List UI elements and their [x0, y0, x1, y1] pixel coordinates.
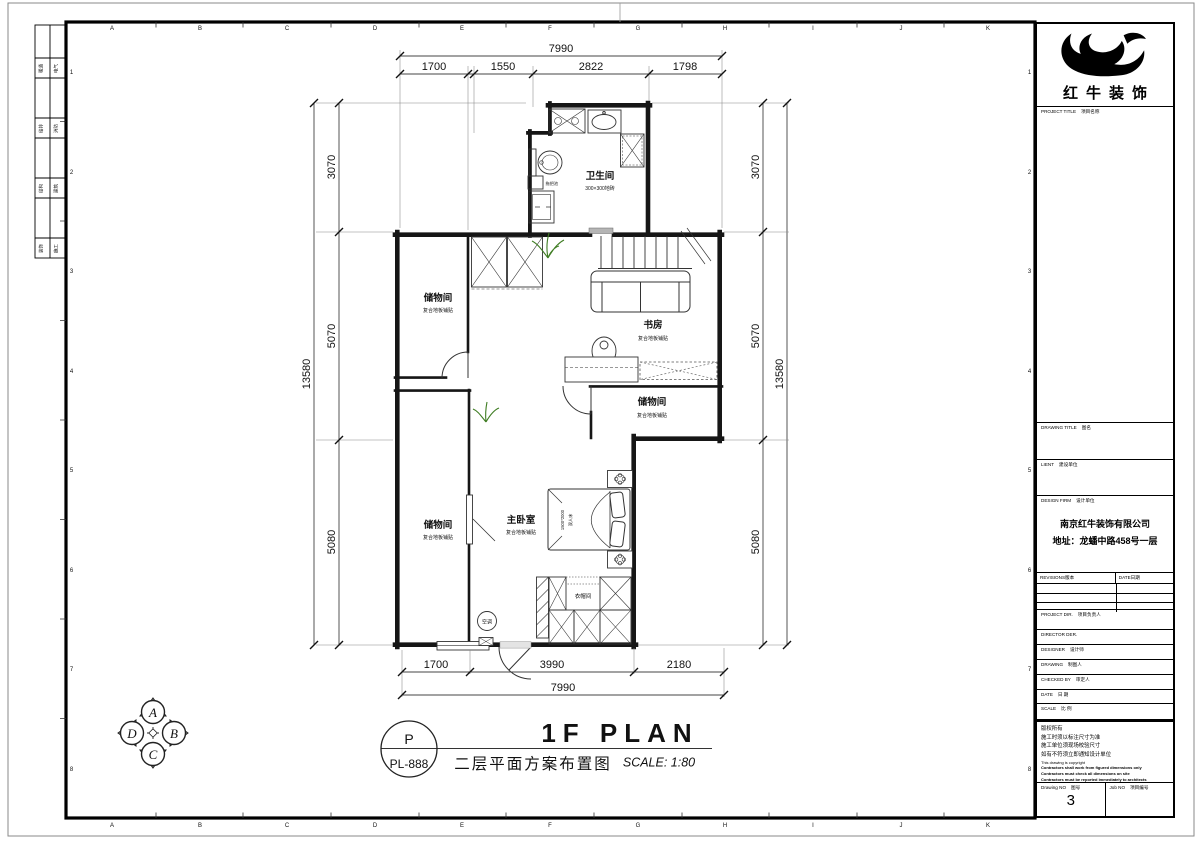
dim-label: 1700	[422, 61, 446, 73]
drawing-title-section: DRAWING TITLE图名	[1037, 423, 1173, 460]
dim-label: 5070	[750, 324, 762, 348]
revision-row	[1037, 594, 1173, 604]
grid-letter: C	[285, 823, 290, 829]
signature-strip	[35, 25, 65, 258]
revisions-label-cn: 版本	[1065, 575, 1074, 580]
floor-plan-canvas: A B C D E F G H I J K A B C D E F G H I …	[0, 0, 1200, 844]
toilet-icon	[538, 151, 562, 174]
dim-label: 1550	[491, 61, 515, 73]
design-firm-label-en: DESIGN FIRM	[1041, 498, 1071, 503]
room-label-bathroom: 卫生间	[586, 170, 615, 182]
counter-dashed-icon	[640, 362, 717, 380]
dim-label: 3070	[326, 155, 338, 179]
drawing-annotation: P PL-888 1F PLAN 二层平面方案布置图 SCALE: 1:80	[381, 718, 712, 777]
revisions-section: REVISIONS版本 DATE日期	[1037, 573, 1173, 610]
grid-letter: A	[110, 26, 114, 32]
room-label-master-bedroom: 主卧室	[507, 514, 536, 526]
ac-unit-icon	[478, 612, 497, 646]
grid-letter: F	[548, 26, 552, 32]
drawing-label-cn: 制图人	[1068, 662, 1082, 667]
drawing-row: DRAWING制图人	[1037, 660, 1173, 675]
signature-cell: 结构	[38, 184, 45, 193]
revisions-header: REVISIONS版本 DATE日期	[1037, 573, 1173, 584]
room-label-cloakroom: 衣帽间	[575, 592, 592, 600]
revisions-label-en: REVISIONS	[1040, 575, 1065, 580]
dim-label: 5070	[326, 324, 338, 348]
plant-icons	[473, 233, 564, 422]
sofa-icon	[591, 271, 690, 312]
grid-number: 5	[1028, 468, 1032, 474]
signature-labels: 暖通 电气 给排 消防 结构 建筑 装饰 施工	[38, 64, 60, 253]
signature-cell: 装饰	[38, 244, 45, 253]
grid-letters-top: A B C D E F G H I J K	[110, 26, 990, 32]
dimension-labels: 7990 1700 1550 2822 1798 1700 3990 2180 …	[301, 43, 786, 694]
design-firm-label-cn: 设计单位	[1076, 498, 1094, 503]
drawing-tag-letter: P	[404, 731, 413, 747]
closet-icons	[472, 237, 543, 289]
compass-letter-c: C	[149, 747, 158, 762]
drawing-number-section: Drawing NO图号 3 Job NO项目编号	[1037, 783, 1173, 816]
drawing-number-cell: Drawing NO图号 3	[1037, 783, 1106, 816]
director-row: DIRECTOR DER.	[1037, 630, 1173, 645]
sliding-door-panel	[467, 495, 473, 544]
job-no-label-en: Job NO	[1110, 785, 1126, 790]
date-label-cn: 日 期	[1058, 692, 1068, 697]
dim-label: 5080	[750, 530, 762, 554]
grid-letter: C	[285, 26, 290, 32]
project-dir-row: PROJECT DIR.项目负责人	[1037, 610, 1173, 630]
dim-label: 13580	[774, 359, 786, 390]
storage2-door-arc	[563, 386, 591, 414]
grid-letters-bottom: A B C D E F G H I J K	[110, 823, 990, 829]
grid-letter: J	[900, 26, 903, 32]
designer-row: DESIGNER设计师	[1037, 645, 1173, 660]
bathroom-fixtures	[528, 109, 644, 223]
revision-row	[1037, 584, 1173, 594]
wardrobe-icons	[537, 577, 632, 644]
grid-letter: E	[460, 823, 464, 829]
grid-number: 4	[1028, 369, 1032, 375]
ac-label: 空调	[482, 619, 492, 626]
project-dir-label-en: PROJECT DIR.	[1041, 612, 1073, 617]
drawing-title-label-cn: 图名	[1082, 425, 1091, 430]
grid-number: 8	[1028, 767, 1032, 773]
design-firm-section: DESIGN FIRM设计单位 南京红牛装饰有限公司 地址：龙蟠中路458号一层	[1037, 496, 1173, 573]
dim-label: 1700	[424, 659, 448, 671]
grid-letter: I	[812, 823, 814, 829]
room-label-study: 书房	[643, 319, 662, 331]
room-label-storage-3: 储物间	[424, 519, 453, 531]
grid-number: 6	[70, 568, 74, 574]
dim-label: 13580	[301, 359, 313, 390]
grid-numbers-right: 1 2 3 4 5 6 7 8	[1028, 70, 1032, 773]
grid-letter: K	[986, 26, 990, 32]
scale-label-en: SCALE	[1041, 706, 1056, 711]
grid-number: 7	[1028, 667, 1032, 673]
grid-number: 4	[70, 369, 74, 375]
dim-label: 2180	[667, 659, 691, 671]
dim-label: 1798	[673, 61, 697, 73]
drawing-sheet: A B C D E F G H I J K A B C D E F G H I …	[0, 0, 1200, 844]
dim-label: 3070	[750, 155, 762, 179]
signature-cell: 电气	[53, 64, 59, 73]
signature-cell: 给排	[38, 124, 45, 133]
grid-numbers-left: 1 2 3 4 5 6 7 8	[70, 70, 74, 773]
room-label-storage-2: 储物间	[638, 396, 667, 408]
grid-number: 7	[70, 667, 74, 673]
drawing-title-label-en: DRAWING TITLE	[1041, 425, 1077, 430]
grid-letter: K	[986, 823, 990, 829]
grid-number: 1	[70, 70, 74, 76]
compass-icon: A B C D	[118, 698, 188, 768]
dim-label: 7990	[551, 682, 575, 694]
room-label-storage-1: 储物间	[424, 292, 453, 304]
grid-letter: F	[548, 823, 552, 829]
plan-scale-label: SCALE: 1:80	[623, 756, 695, 770]
bathroom-threshold	[589, 228, 613, 234]
checked-by-label-cn: 审定人	[1076, 677, 1090, 682]
bed-type-label: 双人床	[567, 513, 574, 526]
bull-logo-icon	[1039, 26, 1171, 80]
grid-letter: H	[723, 823, 727, 829]
checked-by-row: CHECKED BY审定人	[1037, 675, 1173, 690]
grid-number: 3	[1028, 269, 1032, 275]
drawing-no-label-cn: 图号	[1071, 785, 1080, 790]
job-number-cell: Job NO项目编号	[1106, 783, 1174, 816]
note-line: 施工时须以标注尺寸为准	[1041, 734, 1169, 743]
date-row: DATE日 期	[1037, 690, 1173, 704]
compass-letter-b: B	[170, 726, 178, 741]
grid-number: 2	[1028, 170, 1032, 176]
bed-size-label: 1500*2000	[560, 509, 565, 530]
note-line: 施工单位须现场校验尺寸	[1041, 742, 1169, 751]
grid-number: 6	[1028, 568, 1032, 574]
dim-label: 5080	[326, 530, 338, 554]
date-label-en: DATE	[1041, 692, 1053, 697]
room-sublabel: 复合地板铺贴	[423, 307, 453, 314]
grid-number: 1	[1028, 70, 1032, 76]
dimension-lines	[314, 56, 787, 695]
note-line: 如有不符须立即通知设计单位	[1041, 751, 1169, 760]
desk-chair-icons	[565, 337, 638, 382]
date-col-label-en: DATE	[1119, 575, 1131, 580]
signature-cell: 暖通	[38, 64, 45, 73]
signature-cell: 建筑	[53, 184, 60, 193]
grid-letter: B	[198, 26, 202, 32]
project-title-label-en: PROJECT TITLE	[1041, 109, 1076, 114]
room-sublabel: 复合地板铺贴	[637, 412, 667, 419]
grid-number: 3	[70, 269, 74, 275]
designer-label-en: DESIGNER	[1041, 647, 1065, 652]
grid-number: 8	[70, 767, 74, 773]
dim-label: 2822	[579, 61, 603, 73]
client-section: LIENT建设单位	[1037, 460, 1173, 496]
plan-title-cn: 二层平面方案布置图	[454, 755, 612, 773]
mop-sink-label: 拖把池	[546, 180, 559, 187]
room-sublabel: 复合地板铺贴	[506, 529, 536, 536]
signature-cell: 施工	[53, 244, 60, 253]
note-line: Contractors must be reported immediately…	[1041, 777, 1169, 783]
design-firm-company: 南京红牛装饰有限公司	[1041, 517, 1169, 530]
job-no-label-cn: 项目编号	[1130, 785, 1148, 790]
storage-door-arc	[442, 352, 468, 378]
grid-letter: D	[373, 26, 378, 32]
grid-letter: G	[636, 26, 641, 32]
grid-number: 2	[70, 170, 74, 176]
project-dir-label-cn: 项目负责人	[1078, 612, 1101, 617]
grid-letter: G	[636, 823, 641, 829]
drawing-label-en: DRAWING	[1041, 662, 1063, 667]
note-line: 版权所有	[1041, 725, 1169, 734]
grid-number: 5	[70, 468, 74, 474]
room-sublabel: 复合地板铺贴	[638, 335, 668, 342]
entry-threshold	[500, 642, 531, 649]
designer-label-cn: 设计师	[1070, 647, 1084, 652]
signature-cell: 消防	[53, 124, 60, 133]
logo-text: 红牛装饰	[1037, 82, 1173, 103]
checked-by-label-en: CHECKED BY	[1041, 677, 1071, 682]
notes-section: 版权所有 施工时须以标注尺寸为准 施工单位须现场校验尺寸 如有不符须立即通知设计…	[1037, 720, 1173, 783]
scale-label-cn: 比 例	[1061, 706, 1071, 711]
drawing-no-label-en: Drawing NO	[1041, 785, 1066, 790]
grid-letter: H	[723, 26, 727, 32]
dim-label: 7990	[549, 43, 573, 55]
date-col-label-cn: 日期	[1131, 575, 1140, 580]
drawing-tag-code: PL-888	[390, 757, 429, 771]
room-sublabel: 300×300地砖	[585, 185, 615, 192]
logo-section: 红牛装饰	[1037, 24, 1173, 107]
plan-title-en: 1F PLAN	[541, 718, 698, 748]
desk-icon	[565, 357, 638, 382]
entry-door-arc	[499, 647, 531, 679]
scale-row: SCALE比 例	[1037, 704, 1173, 720]
design-firm-address: 地址：龙蟠中路458号一层	[1041, 534, 1169, 547]
director-label-en: DIRECTOR DER.	[1041, 632, 1077, 637]
sliding-door-swing	[473, 519, 495, 541]
project-title-label-cn: 项目名称	[1081, 109, 1099, 114]
grid-letter: B	[198, 823, 202, 829]
sheet-frame	[8, 3, 1194, 836]
grid-letter: D	[373, 823, 378, 829]
dim-label: 3990	[540, 659, 564, 671]
client-label-en: LIENT	[1041, 462, 1054, 467]
drawing-number-value: 3	[1041, 792, 1101, 809]
client-label-cn: 建设单位	[1059, 462, 1077, 467]
compass-letter-d: D	[126, 726, 137, 741]
project-title-section: PROJECT TITLE项目名称	[1037, 107, 1173, 423]
compass-letter-a: A	[148, 705, 157, 720]
plan-walls	[395, 103, 722, 647]
grid-letter: A	[110, 823, 114, 829]
grid-letter: I	[812, 26, 814, 32]
grid-letter: E	[460, 26, 464, 32]
title-block: 红牛装饰 PROJECT TITLE项目名称 DRAWING TITLE图名 L…	[1035, 22, 1175, 818]
grid-ticks	[60, 22, 1041, 818]
room-sublabel: 复合地板铺贴	[423, 534, 453, 541]
grid-letter: J	[900, 823, 903, 829]
